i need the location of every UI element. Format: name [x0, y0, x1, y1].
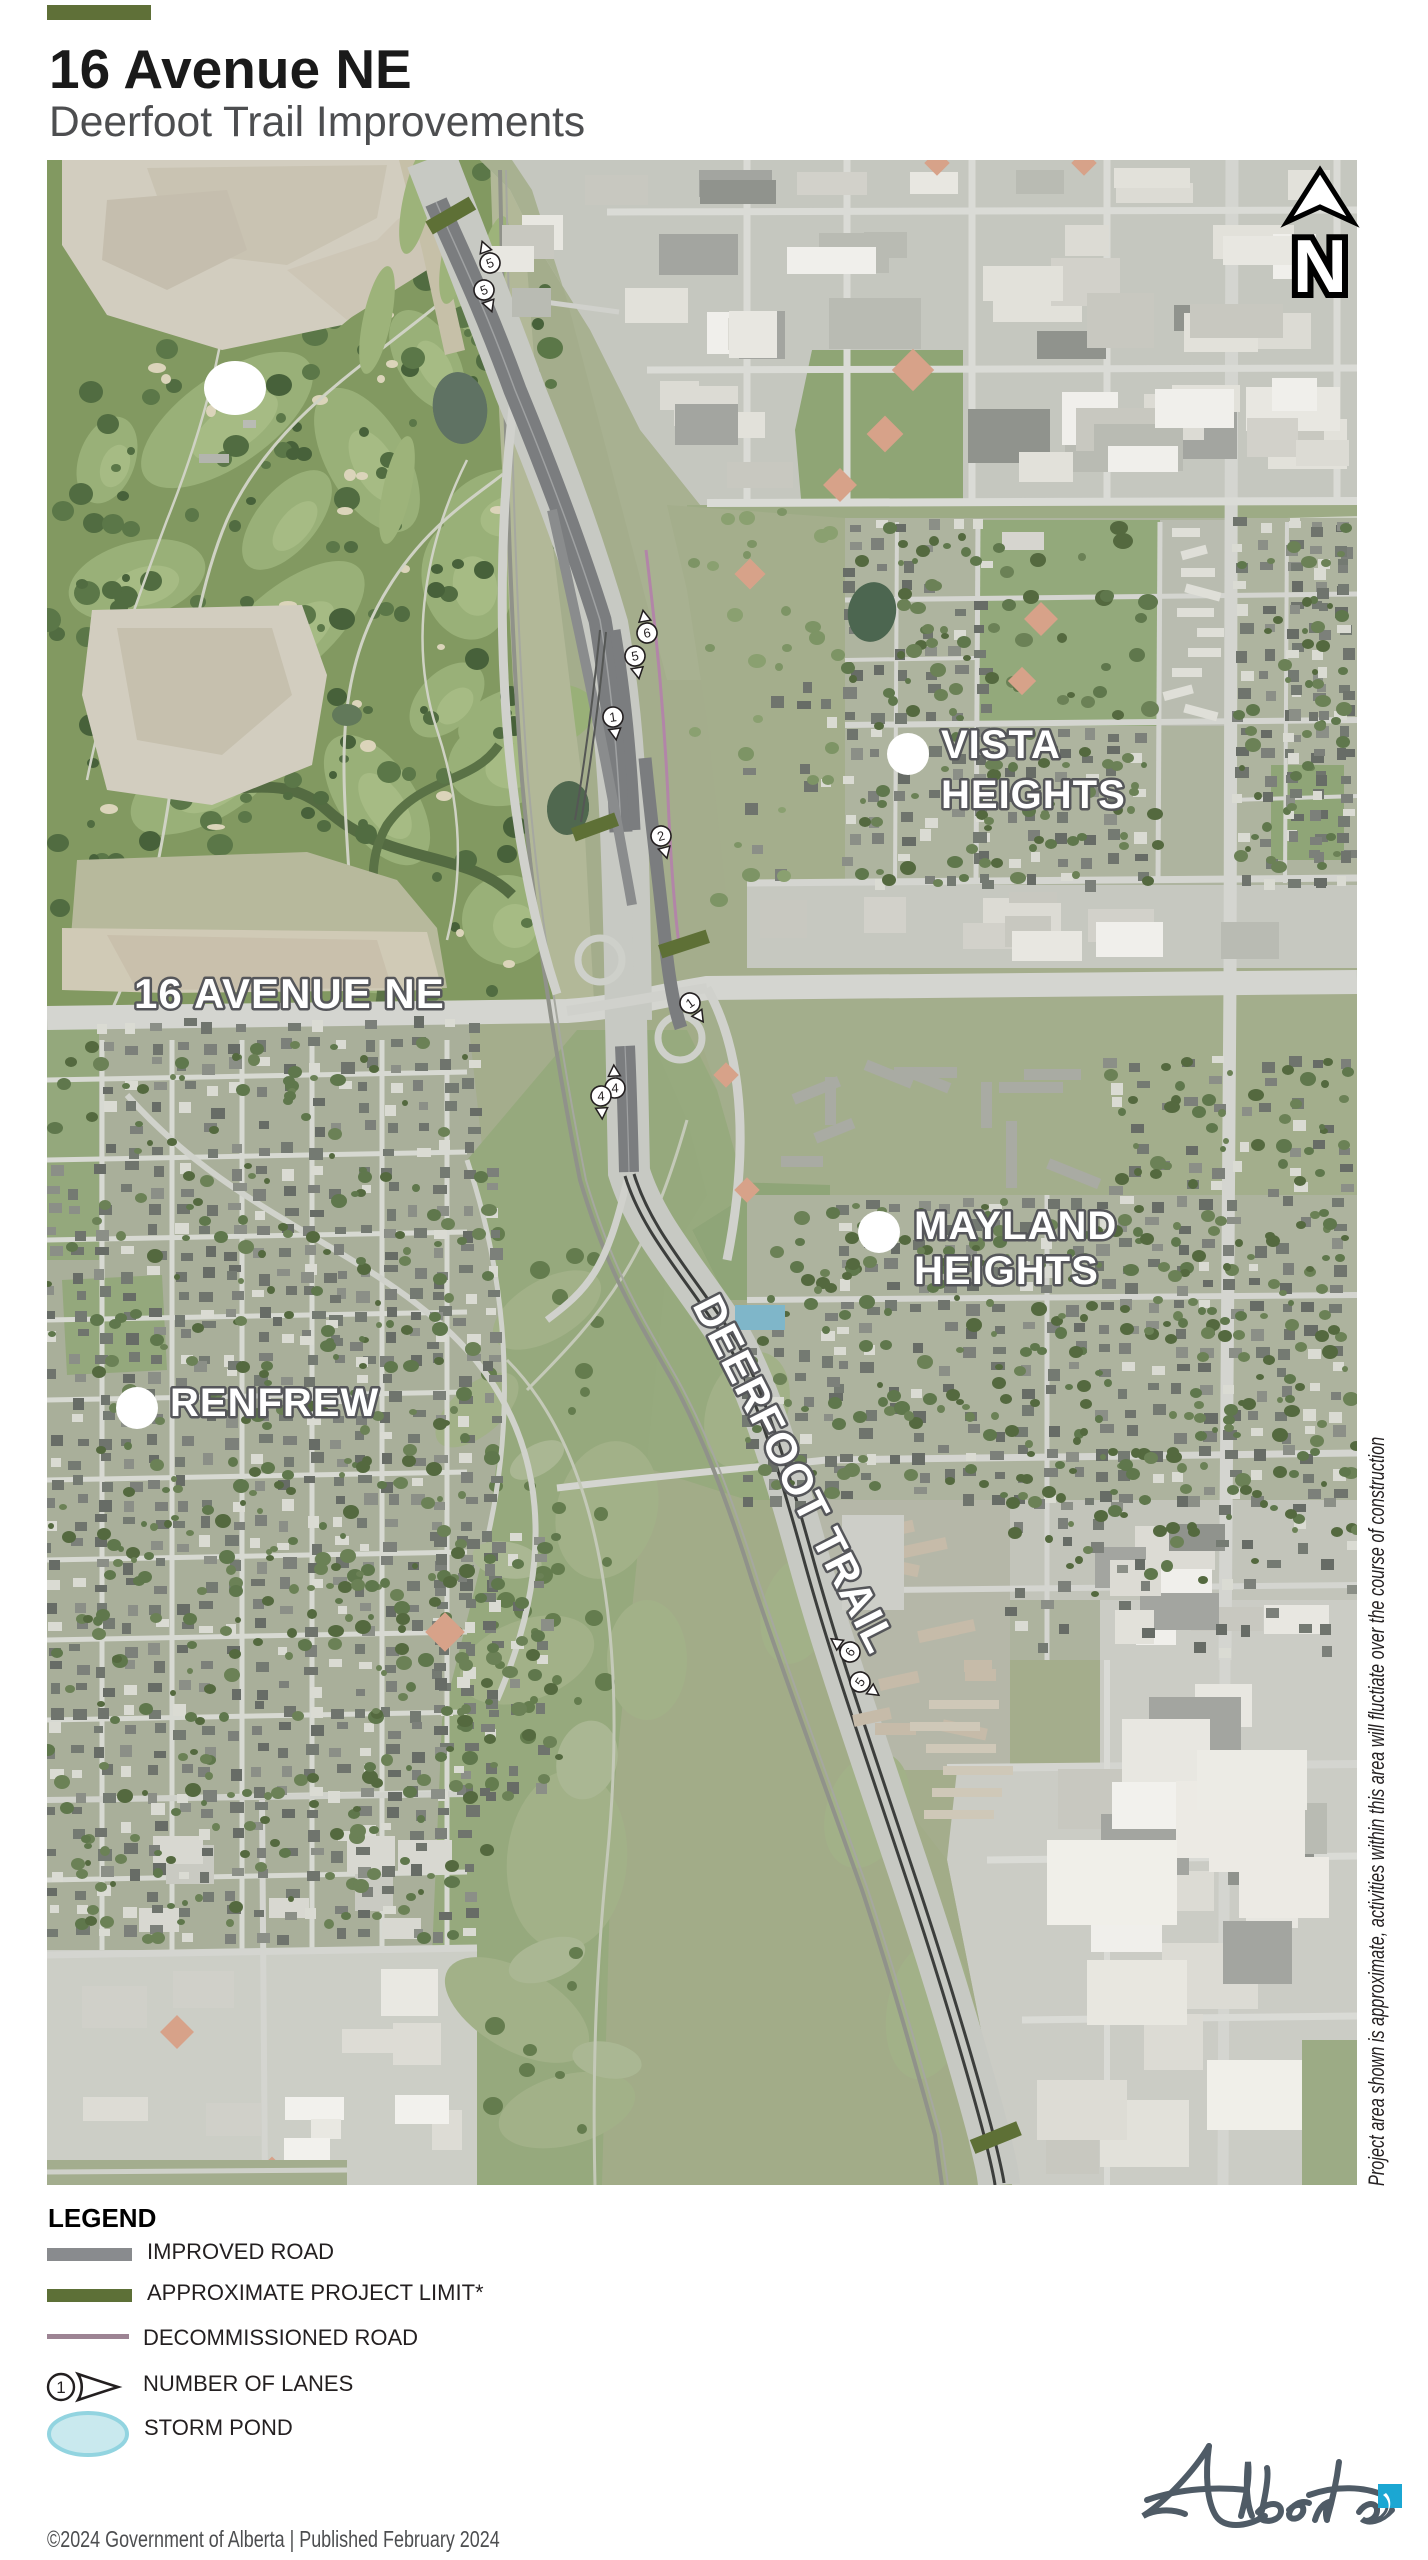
svg-text:1: 1: [56, 2378, 65, 2397]
svg-text:VISTA: VISTA: [941, 723, 1061, 767]
svg-text:MAYLAND: MAYLAND: [914, 1204, 1117, 1248]
svg-text:16 AVENUE NE: 16 AVENUE NE: [134, 970, 445, 1017]
svg-text:RENFREW: RENFREW: [170, 1381, 379, 1425]
svg-text:HEIGHTS: HEIGHTS: [914, 1249, 1099, 1293]
svg-text:4: 4: [597, 1088, 605, 1103]
svg-text:N: N: [1293, 224, 1347, 303]
svg-text:HEIGHTS: HEIGHTS: [941, 773, 1126, 817]
svg-text:4: 4: [611, 1080, 619, 1095]
